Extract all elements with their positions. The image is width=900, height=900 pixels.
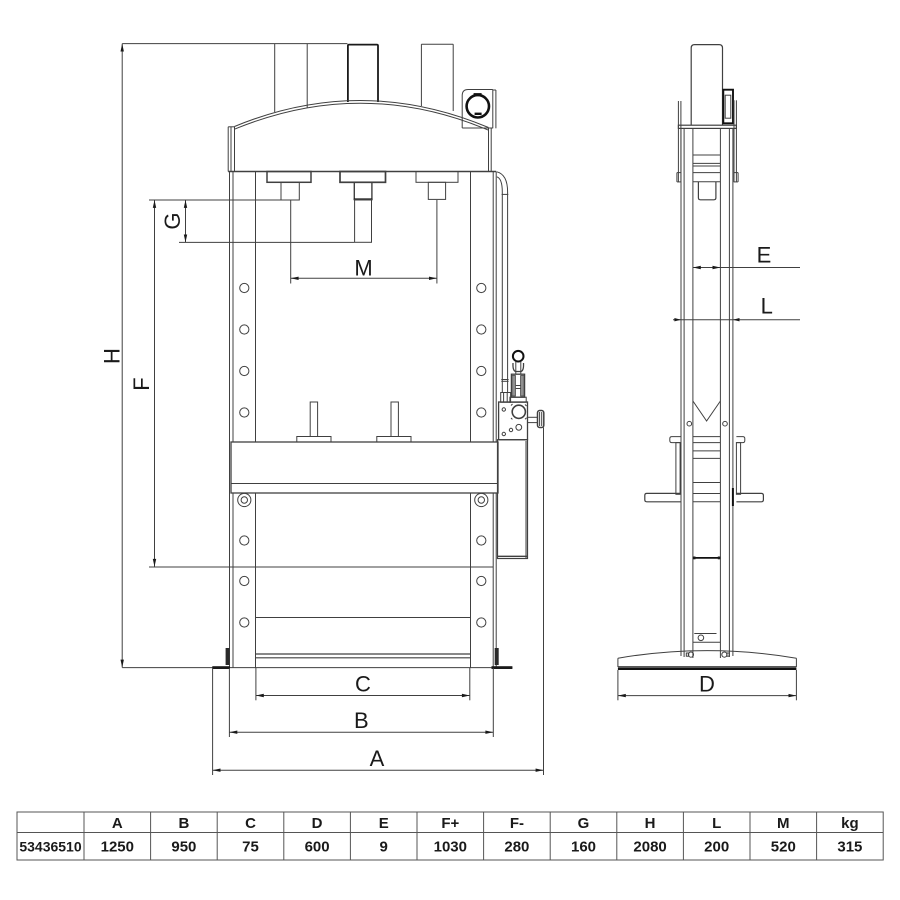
svg-text:F: F bbox=[129, 377, 154, 390]
svg-text:600: 600 bbox=[305, 839, 330, 856]
svg-text:M: M bbox=[354, 255, 372, 280]
svg-text:160: 160 bbox=[571, 839, 596, 856]
svg-text:1250: 1250 bbox=[101, 839, 134, 856]
svg-text:L: L bbox=[712, 815, 721, 832]
svg-text:H: H bbox=[645, 815, 656, 832]
svg-text:F-: F- bbox=[510, 815, 524, 832]
svg-text:2080: 2080 bbox=[633, 839, 666, 856]
svg-text:A: A bbox=[370, 746, 385, 771]
svg-text:9: 9 bbox=[380, 839, 388, 856]
svg-text:G: G bbox=[160, 212, 185, 229]
svg-text:280: 280 bbox=[504, 839, 529, 856]
svg-text:75: 75 bbox=[242, 839, 259, 856]
svg-text:B: B bbox=[178, 815, 189, 832]
svg-text:D: D bbox=[699, 672, 715, 697]
svg-text:E: E bbox=[757, 243, 772, 268]
svg-text:D: D bbox=[312, 815, 323, 832]
svg-text:G: G bbox=[578, 815, 590, 832]
svg-text:F+: F+ bbox=[441, 815, 459, 832]
svg-text:B: B bbox=[354, 708, 369, 733]
svg-text:315: 315 bbox=[837, 839, 862, 856]
svg-text:A: A bbox=[112, 815, 123, 832]
svg-text:520: 520 bbox=[771, 839, 796, 856]
svg-text:L: L bbox=[761, 294, 773, 319]
svg-text:H: H bbox=[100, 348, 125, 364]
svg-text:950: 950 bbox=[171, 839, 196, 856]
svg-text:C: C bbox=[355, 672, 371, 697]
svg-text:E: E bbox=[379, 815, 389, 832]
svg-text:M: M bbox=[777, 815, 790, 832]
svg-text:53436510: 53436510 bbox=[19, 839, 82, 855]
svg-text:1030: 1030 bbox=[434, 839, 467, 856]
svg-text:kg: kg bbox=[841, 815, 859, 832]
svg-text:200: 200 bbox=[704, 839, 729, 856]
svg-text:C: C bbox=[245, 815, 256, 832]
